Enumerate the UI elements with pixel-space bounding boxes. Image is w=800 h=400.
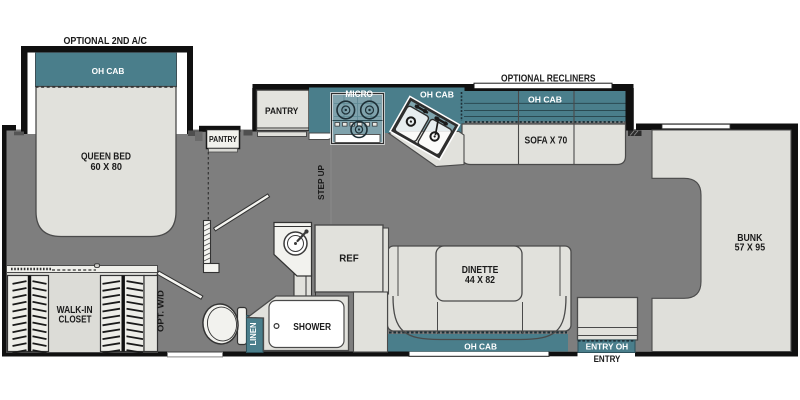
svg-text:SOFA X 70: SOFA X 70: [525, 136, 568, 147]
svg-text:LINEN: LINEN: [249, 322, 258, 345]
svg-text:PANTRY: PANTRY: [209, 135, 238, 144]
svg-text:44 X 82: 44 X 82: [465, 275, 495, 286]
svg-text:OH CAB: OH CAB: [92, 66, 125, 76]
svg-text:OH CAB: OH CAB: [528, 95, 562, 105]
svg-text:REF: REF: [339, 254, 359, 265]
svg-text:OH CAB: OH CAB: [464, 342, 497, 352]
svg-text:MICRO: MICRO: [345, 89, 373, 99]
svg-text:57 X 95: 57 X 95: [735, 243, 766, 254]
svg-text:SHOWER: SHOWER: [293, 322, 331, 333]
svg-text:PANTRY: PANTRY: [265, 106, 299, 117]
svg-text:60 X 80: 60 X 80: [90, 162, 122, 173]
svg-text:ENTRY: ENTRY: [594, 354, 621, 364]
svg-text:QUEEN BED: QUEEN BED: [81, 152, 131, 163]
svg-text:OH CAB: OH CAB: [420, 90, 454, 100]
svg-text:OPT. W/D: OPT. W/D: [156, 290, 166, 332]
svg-text:ENTRY OH: ENTRY OH: [586, 342, 629, 351]
svg-text:CLOSET: CLOSET: [59, 314, 92, 325]
svg-text:OPTIONAL RECLINERS: OPTIONAL RECLINERS: [501, 73, 596, 84]
svg-text:OPTIONAL 2ND A/C: OPTIONAL 2ND A/C: [64, 36, 147, 47]
svg-text:STEP UP: STEP UP: [316, 165, 326, 200]
